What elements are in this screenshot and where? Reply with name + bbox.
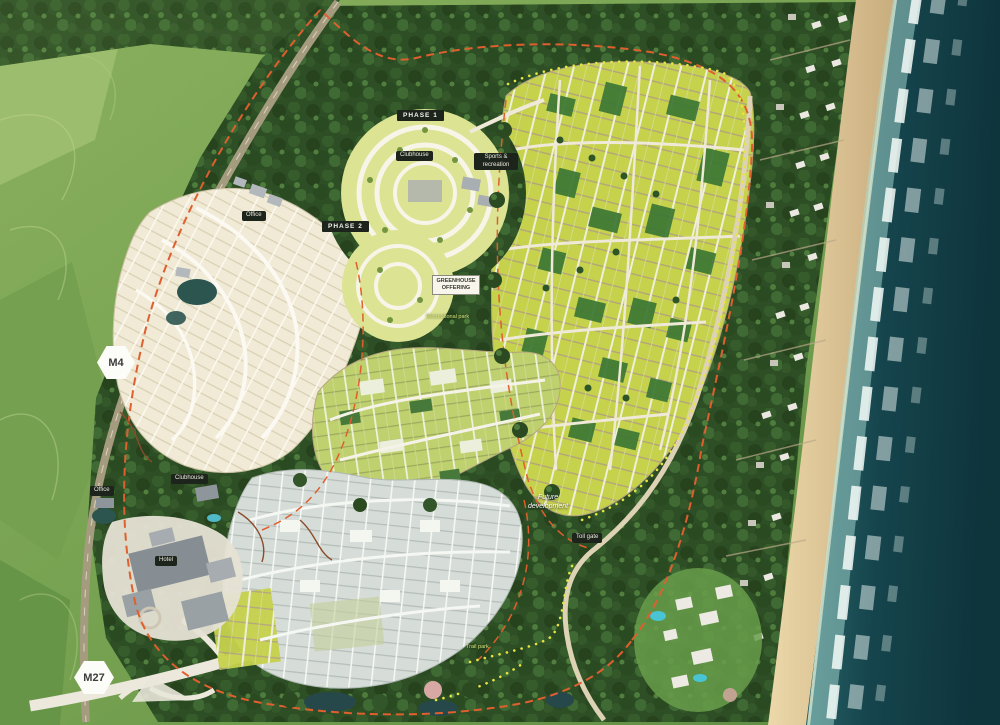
m27-road-marker-label: M27 <box>83 672 104 684</box>
office-south-label: Office <box>90 486 114 496</box>
map-artwork <box>0 0 1000 725</box>
trail-park-label: Trail park <box>466 644 489 650</box>
clubhouse-north-label: Clubhouse <box>396 151 433 161</box>
greenhouse-offering-label: Greenhouse offering <box>432 275 480 295</box>
m4-road-marker-label: M4 <box>108 357 123 369</box>
masterplan-map: M4 M27 PHASE 1 PHASE 2 Office Clubhouse … <box>0 0 1000 725</box>
office-north-label: Office <box>242 211 266 221</box>
hotel-label: Hotel <box>155 556 177 566</box>
phase-1-banner: PHASE 1 <box>397 110 444 121</box>
sports-recreation-label: Sports & recreation <box>474 153 518 170</box>
toll-gate-label: Toll gate <box>572 533 602 543</box>
greenhouse-offering-line2: offering <box>436 285 476 292</box>
beach-resort <box>634 568 762 712</box>
greenhouse-offering-line1: Greenhouse <box>436 278 476 285</box>
recreational-park-label: Recreational park <box>426 314 469 320</box>
future-development-label: Future development <box>528 493 568 511</box>
phase-2-banner: PHASE 2 <box>322 221 369 232</box>
clubhouse-south-label: Clubhouse <box>171 474 208 484</box>
future-development-line1: Future <box>528 493 568 502</box>
future-development-line2: development <box>528 502 568 511</box>
